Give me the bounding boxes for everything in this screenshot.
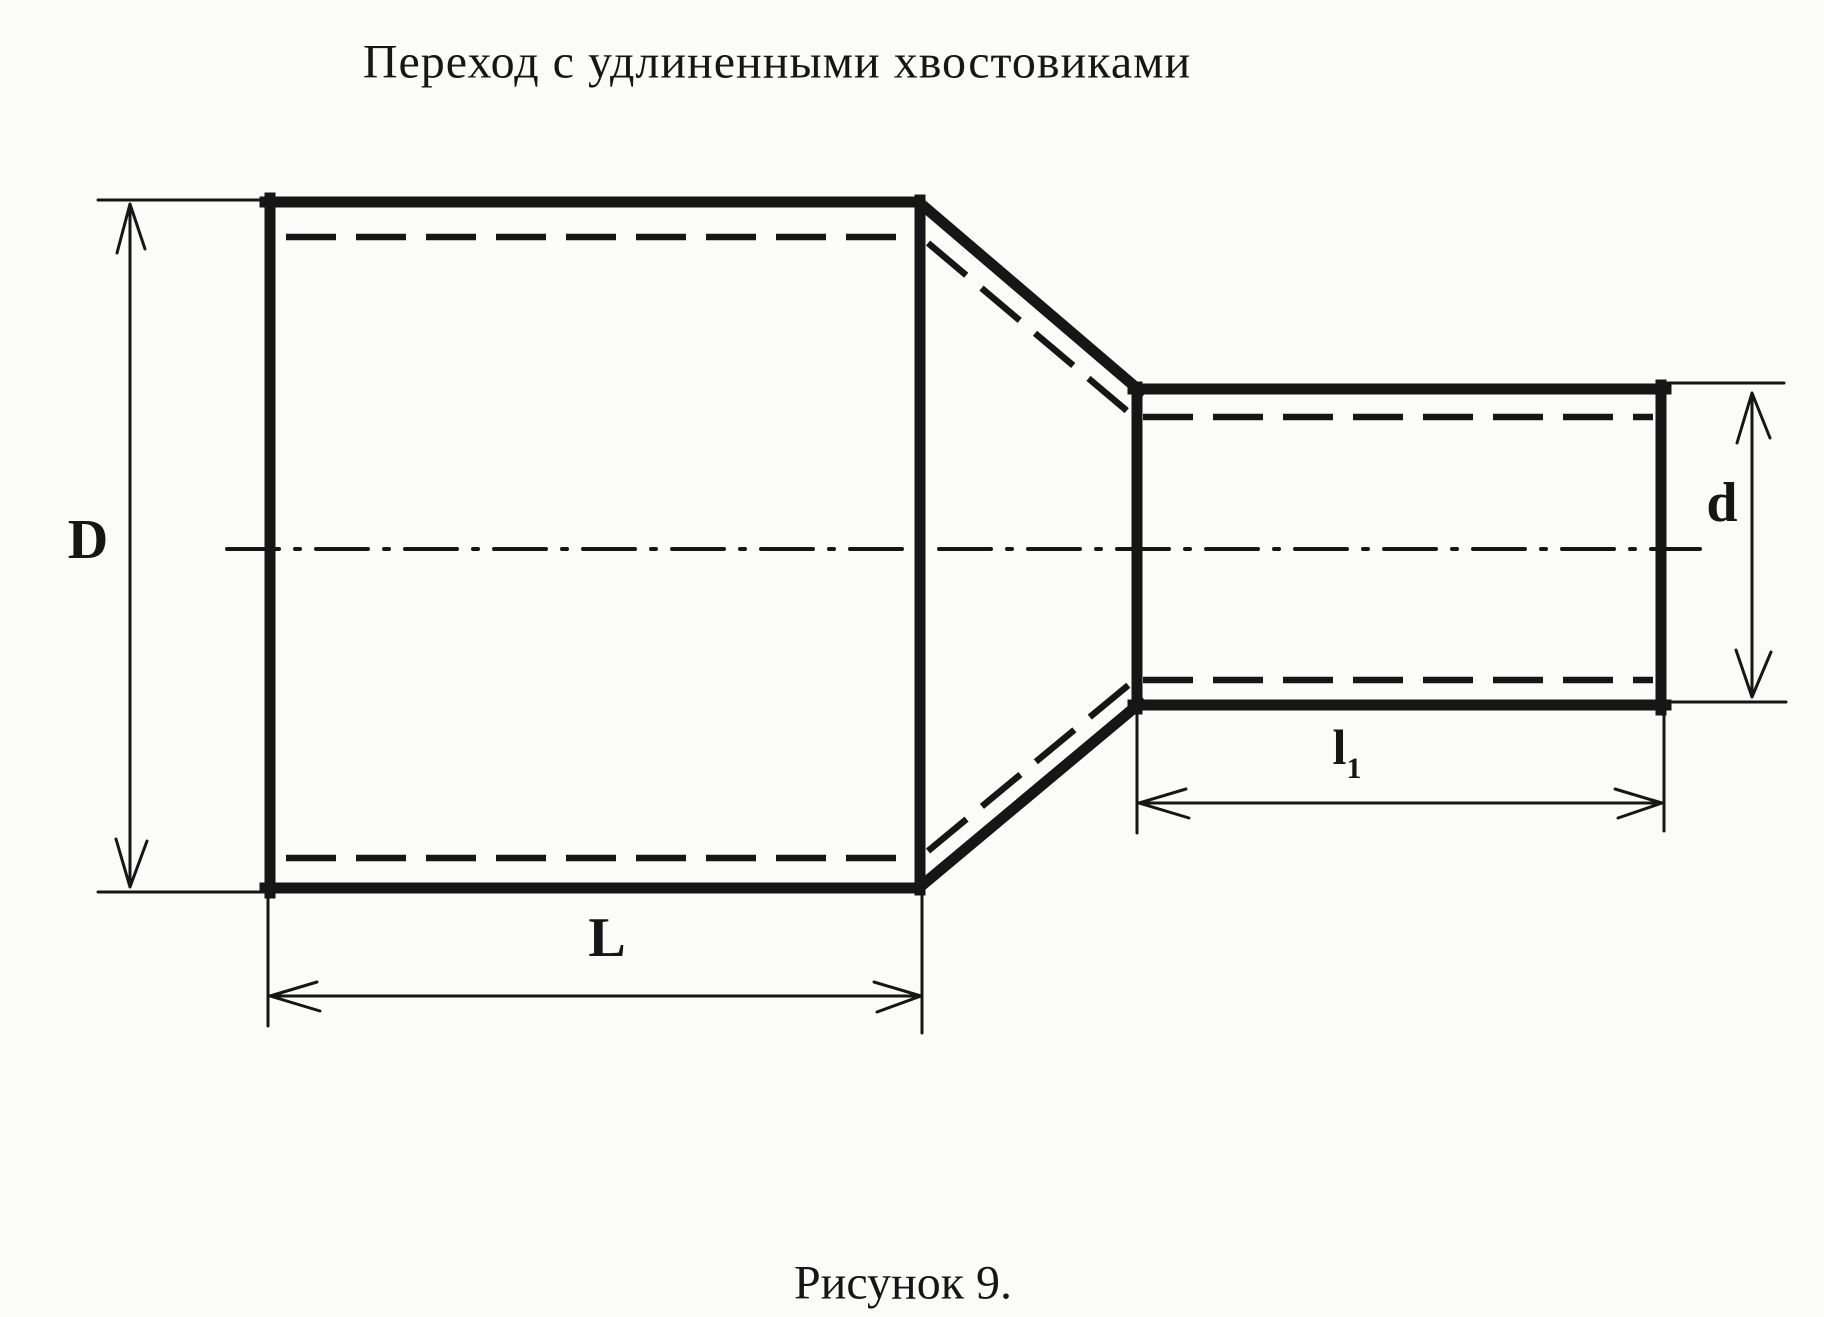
dimension-large-diameter bbox=[98, 200, 262, 892]
reducer-drawing bbox=[0, 0, 1824, 1317]
figure-caption: Рисунок 9. bbox=[794, 1256, 1012, 1311]
small-length-base: l bbox=[1333, 719, 1347, 775]
dimension-label-small-diameter: d bbox=[1706, 475, 1737, 531]
dimension-label-large-diameter: D bbox=[68, 512, 108, 568]
figure-page: Переход с удлиненными хвостовиками bbox=[0, 0, 1824, 1317]
cone-outline bbox=[920, 203, 1140, 887]
dimension-small-diameter bbox=[1666, 383, 1786, 702]
large-cylinder-outline bbox=[265, 198, 920, 893]
dimension-label-large-length: L bbox=[588, 910, 625, 966]
dimension-label-small-length: l1 bbox=[1333, 722, 1362, 784]
small-length-subscript: 1 bbox=[1346, 752, 1361, 785]
dimension-small-length bbox=[1137, 713, 1664, 833]
